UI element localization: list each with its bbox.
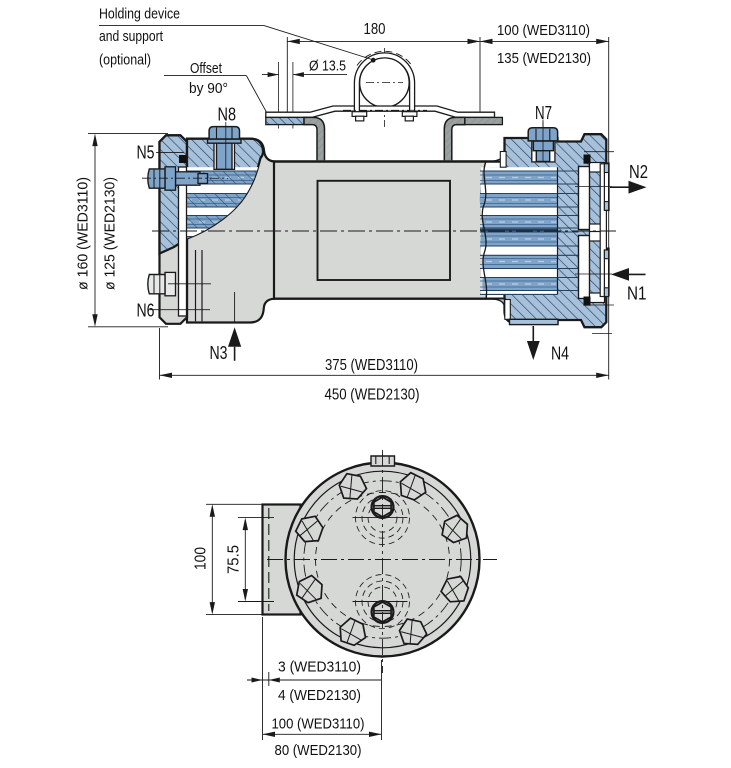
svg-text:4 (WED2130): 4 (WED2130)	[278, 687, 361, 704]
svg-text:ø 160 (WED3110): ø 160 (WED3110)	[75, 177, 92, 290]
svg-text:Ø 13.5: Ø 13.5	[309, 58, 346, 75]
svg-text:100: 100	[193, 547, 210, 570]
svg-text:Offset: Offset	[190, 61, 222, 77]
svg-text:100 (WED3110): 100 (WED3110)	[497, 22, 590, 39]
svg-text:450 (WED2130): 450 (WED2130)	[325, 387, 420, 404]
svg-text:N7: N7	[535, 102, 552, 123]
svg-text:N3: N3	[210, 342, 228, 363]
svg-text:3 (WED3110): 3 (WED3110)	[278, 659, 361, 676]
svg-text:by 90°: by 90°	[189, 81, 228, 97]
svg-text:N5: N5	[137, 142, 155, 163]
svg-text:180: 180	[364, 21, 386, 38]
svg-text:N2: N2	[629, 161, 648, 182]
svg-text:135 (WED2130): 135 (WED2130)	[497, 50, 591, 67]
svg-text:80 (WED2130): 80 (WED2130)	[275, 742, 362, 759]
svg-text:N1: N1	[627, 283, 647, 304]
svg-text:100 (WED3110): 100 (WED3110)	[272, 716, 365, 733]
svg-text:(optional): (optional)	[99, 53, 151, 69]
svg-text:75.5: 75.5	[226, 545, 243, 574]
svg-text:Holding device: Holding device	[99, 6, 180, 22]
svg-text:N4: N4	[551, 343, 569, 364]
svg-text:and support: and support	[99, 29, 163, 45]
svg-text:375 (WED3110): 375 (WED3110)	[325, 357, 418, 374]
svg-text:ø 125 (WED2130): ø 125 (WED2130)	[102, 177, 119, 290]
svg-text:N8: N8	[218, 104, 237, 125]
